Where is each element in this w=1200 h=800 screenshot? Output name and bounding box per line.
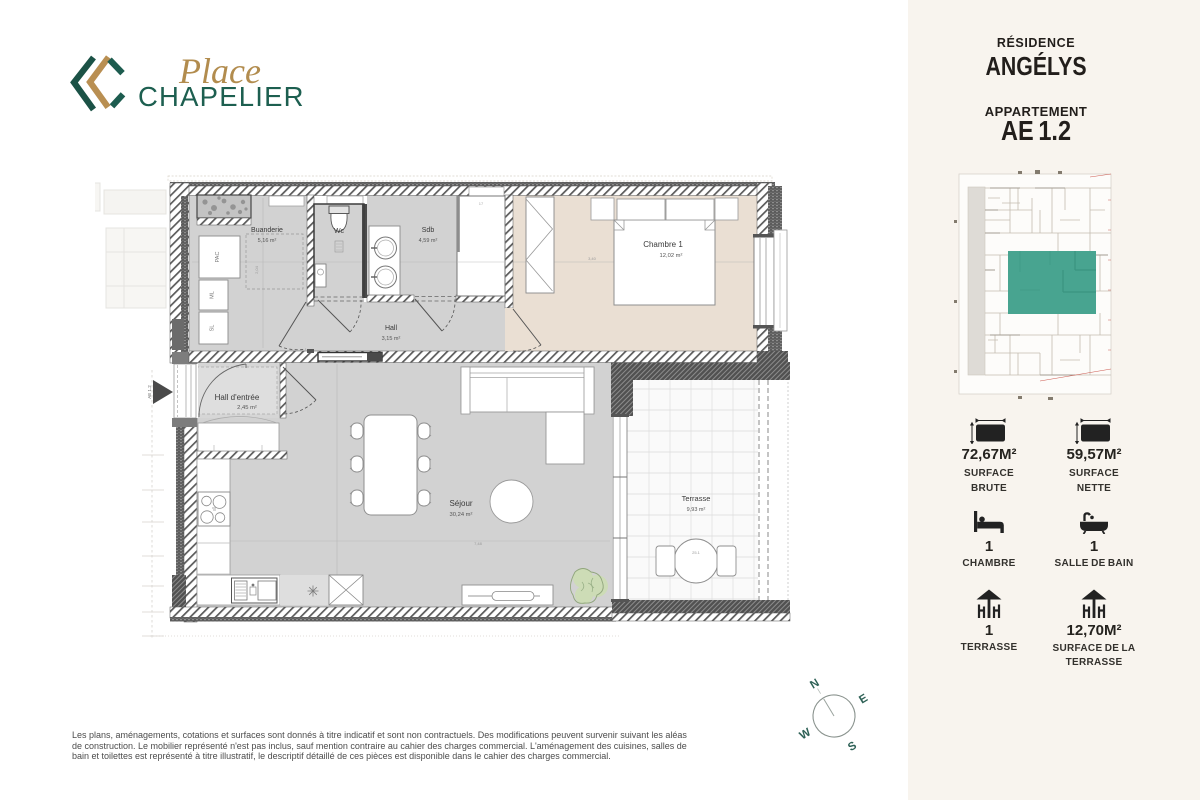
svg-text:2,45 m²: 2,45 m² (237, 405, 257, 411)
svg-text:Hall: Hall (385, 325, 398, 332)
svg-text:4,59 m²: 4,59 m² (419, 238, 438, 244)
svg-text:Wc: Wc (334, 228, 345, 235)
svg-text:9,93 m²: 9,93 m² (687, 507, 706, 513)
svg-text:PAC: PAC (215, 252, 221, 263)
svg-text:2,04: 2,04 (254, 265, 259, 274)
svg-text:Chambre 1: Chambre 1 (643, 240, 683, 249)
svg-text:CHAPELIER: CHAPELIER (138, 81, 305, 112)
svg-text:Séjour: Séjour (449, 499, 472, 508)
svg-text:Sdb: Sdb (422, 227, 435, 234)
svg-text:N: N (808, 677, 821, 692)
svg-text:12,02 m²: 12,02 m² (660, 253, 683, 259)
svg-text:17: 17 (479, 201, 484, 206)
svg-text:Hall d'entrée: Hall d'entrée (215, 393, 260, 402)
svg-text:Buanderie: Buanderie (251, 227, 283, 234)
svg-text:ML: ML (210, 291, 216, 299)
svg-text:3,40: 3,40 (588, 256, 597, 261)
svg-text:5,16 m²: 5,16 m² (258, 238, 277, 244)
svg-text:E: E (857, 692, 870, 706)
svg-text:AE 1.2: AE 1.2 (147, 385, 152, 399)
svg-text:25.1: 25.1 (692, 550, 701, 555)
svg-text:SL: SL (210, 325, 216, 332)
svg-text:30,24 m²: 30,24 m² (450, 512, 473, 518)
svg-text:Terrasse: Terrasse (682, 494, 711, 503)
svg-text:7,48: 7,48 (474, 541, 483, 546)
svg-text:3,15 m²: 3,15 m² (382, 336, 401, 342)
